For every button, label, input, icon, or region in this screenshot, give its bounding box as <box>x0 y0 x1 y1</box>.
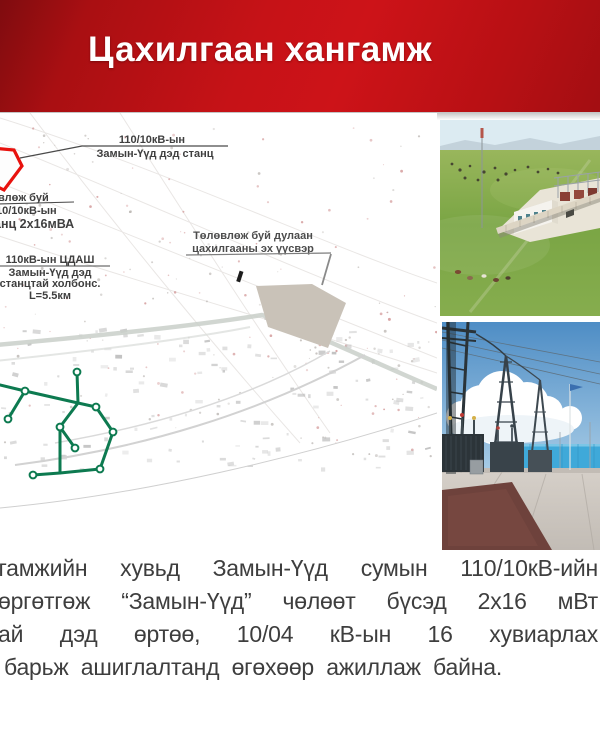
thermal-source-label: Төлөвлөж буй дулаан <box>193 230 313 242</box>
power-line-label: станцтай холбонс. <box>0 278 100 290</box>
slide: Цахилгаан хангамж <box>0 0 600 750</box>
body-text-line: ай дэд өртөө, 10/04 кВ-ын 16 хувиарлах <box>0 618 598 651</box>
substation-render-image <box>440 120 600 316</box>
slide-header: Цахилгаан хангамж <box>0 0 600 112</box>
body-text-line: барьж ашиглалтанд өгөхөөр ажиллаж байна. <box>4 651 600 684</box>
planned-substation-label: влөж буй <box>0 192 49 204</box>
existing-substation-label: Замын-Үүд дэд станц <box>96 148 213 160</box>
thermal-plant-area <box>256 284 346 348</box>
existing-substation-label: 110/10кВ-ын <box>119 134 185 146</box>
body-text-line: нгамжийн хувьд Замын-Үүд сумын 110/10кВ-… <box>0 552 598 585</box>
city-plan-map: 110/10кВ-ын Замын-Үүд дэд станц влөж буй… <box>0 113 437 540</box>
substation-photo-image <box>442 322 600 550</box>
mast-top <box>481 128 484 138</box>
road-lines <box>0 315 437 508</box>
substation-highlight <box>0 148 22 190</box>
planned-substation-label: анц 2х16мВА <box>0 217 74 231</box>
planned-substation-label: 10/10кВ-ын <box>0 205 57 217</box>
power-line-label: 110кВ-ын ЦДАШ <box>6 254 95 266</box>
body-text: нгамжийн хувьд Замын-Үүд сумын 110/10кВ-… <box>0 550 600 690</box>
page-title: Цахилгаан хангамж <box>88 30 432 70</box>
power-line-label: L=5.5км <box>29 290 71 302</box>
body-text-line: өргөтгөж “Замын-Үүд” чөлөөт бүсэд 2х16 м… <box>0 585 598 618</box>
